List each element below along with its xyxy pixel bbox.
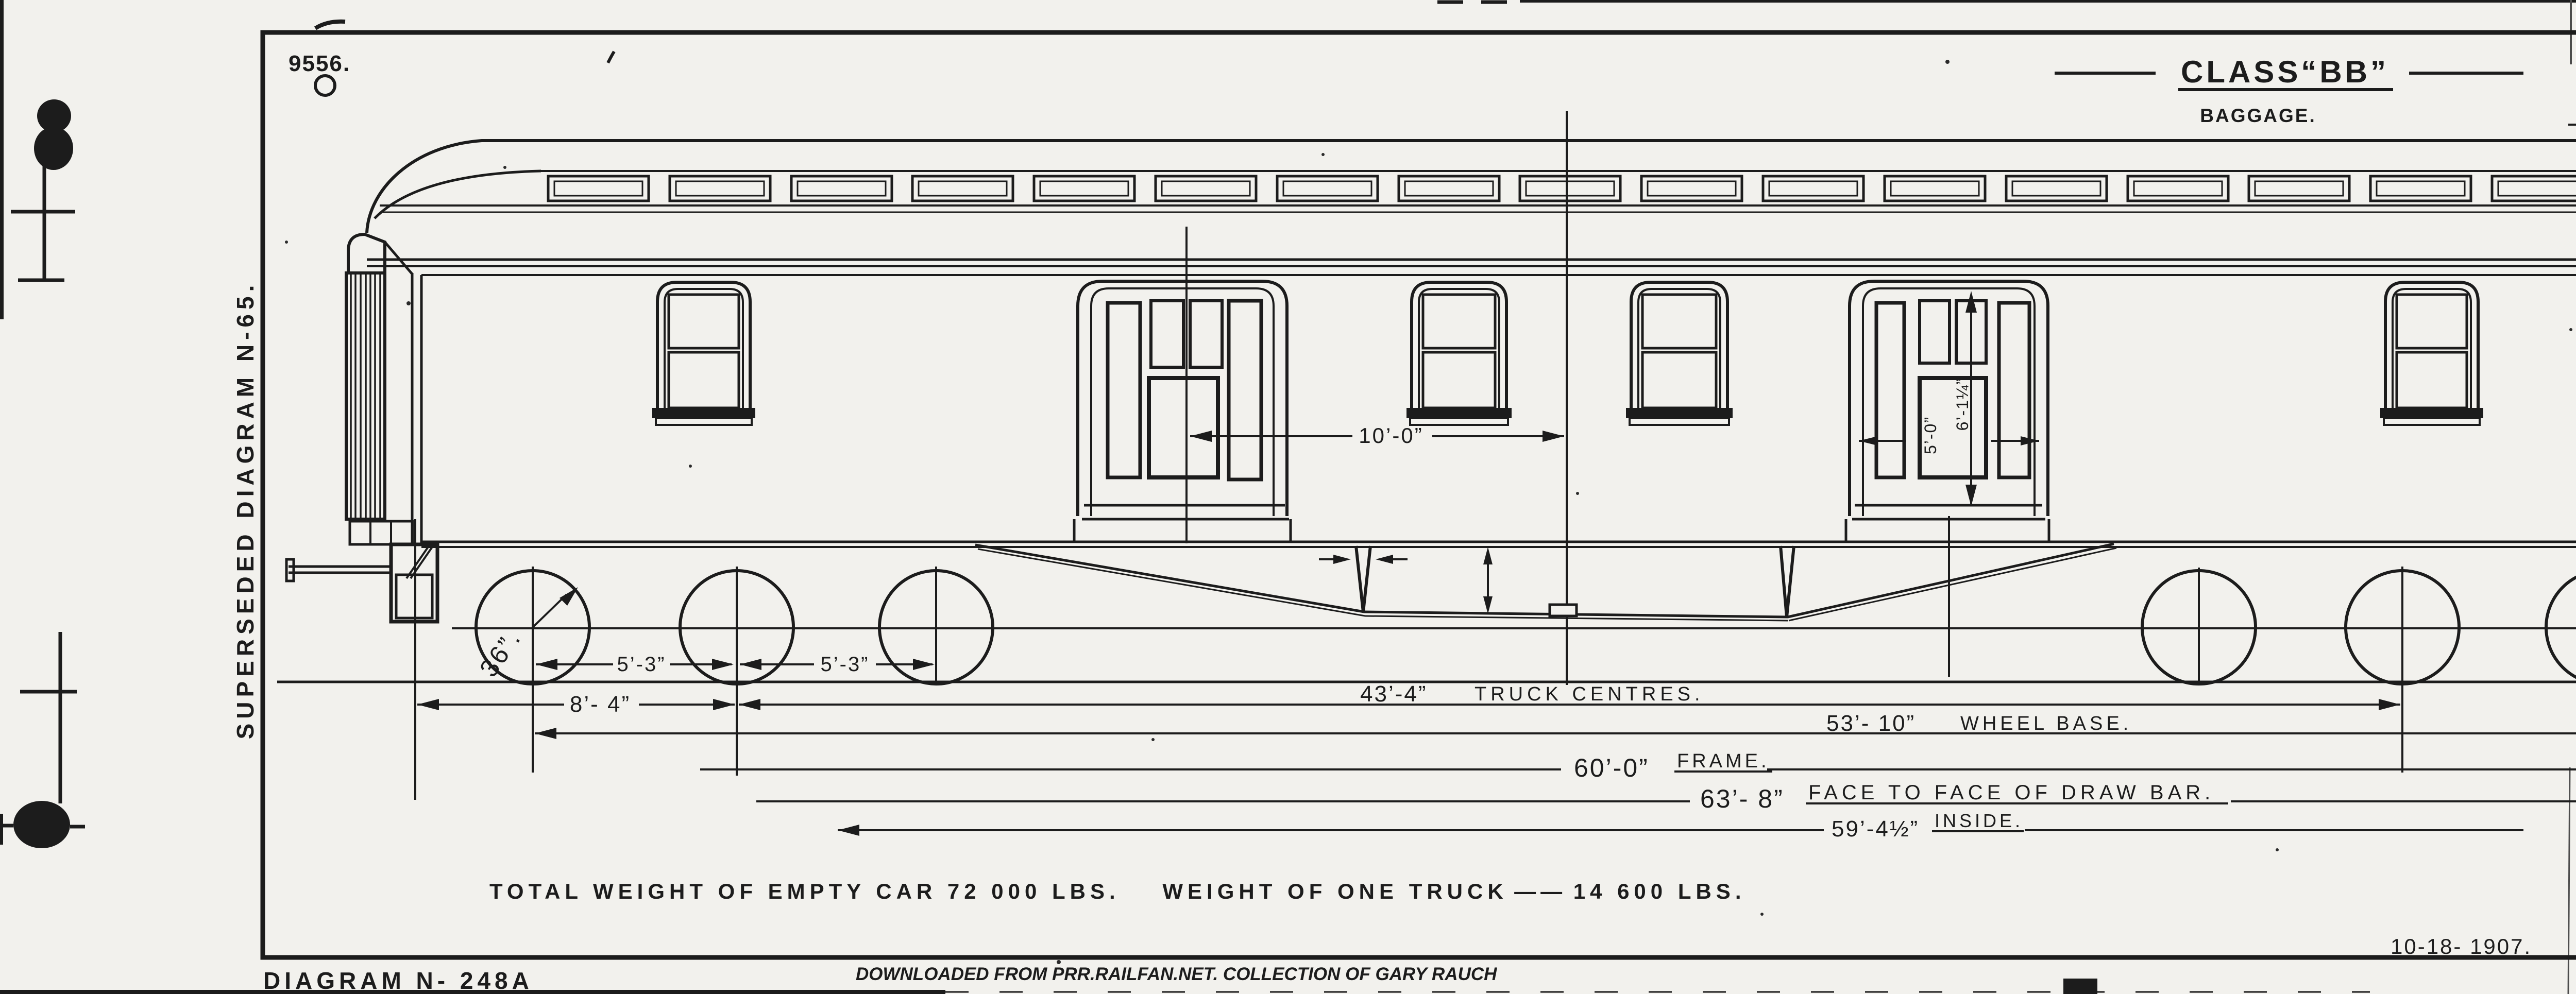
svg-text:5’-0”: 5’-0” [1921, 416, 1940, 454]
svg-text:SUPERSEDED DIAGRAM N-65.: SUPERSEDED DIAGRAM N-65. [232, 281, 259, 740]
svg-text:59’-4½”: 59’-4½” [1832, 816, 1919, 842]
svg-text:BAGGAGE.: BAGGAGE. [2200, 105, 2316, 126]
svg-text:5’-3”: 5’-3” [820, 653, 869, 676]
svg-text:9556.: 9556. [289, 51, 350, 76]
svg-text:5’-3”: 5’-3” [617, 653, 666, 676]
svg-text:FACE TO FACE OF DRAW BAR.: FACE TO FACE OF DRAW BAR. [1808, 781, 2214, 804]
svg-text:TOTAL WEIGHT OF EMPTY CAR 72 0: TOTAL WEIGHT OF EMPTY CAR 72 000 LBS. WE… [489, 879, 1746, 903]
svg-text:43’-4”: 43’-4” [1360, 681, 1428, 707]
svg-text:60’-0”: 60’-0” [1574, 753, 1649, 782]
svg-text:10’-0”: 10’-0” [1359, 423, 1423, 448]
svg-text:53’- 10”: 53’- 10” [1826, 711, 1916, 736]
svg-text:CLASS“BB”: CLASS“BB” [2181, 55, 2389, 89]
svg-text:INSIDE.: INSIDE. [1935, 810, 2023, 831]
svg-text:WHEEL BASE.: WHEEL BASE. [1960, 713, 2132, 734]
svg-text:DOWNLOADED FROM PRR.RAILFAN.NE: DOWNLOADED FROM PRR.RAILFAN.NET. COLLECT… [856, 964, 1497, 984]
svg-text:63’- 8”: 63’- 8” [1700, 784, 1784, 813]
svg-text:DIAGRAM N- 248A: DIAGRAM N- 248A [263, 967, 533, 994]
svg-text:FRAME.: FRAME. [1677, 750, 1770, 772]
svg-text:10-18- 1907.: 10-18- 1907. [2391, 934, 2532, 958]
svg-text:6’-1¼”: 6’-1¼” [1953, 378, 1972, 431]
svg-text:TRUCK CENTRES.: TRUCK CENTRES. [1475, 683, 1704, 705]
svg-text:8’- 4”: 8’- 4” [570, 692, 631, 717]
